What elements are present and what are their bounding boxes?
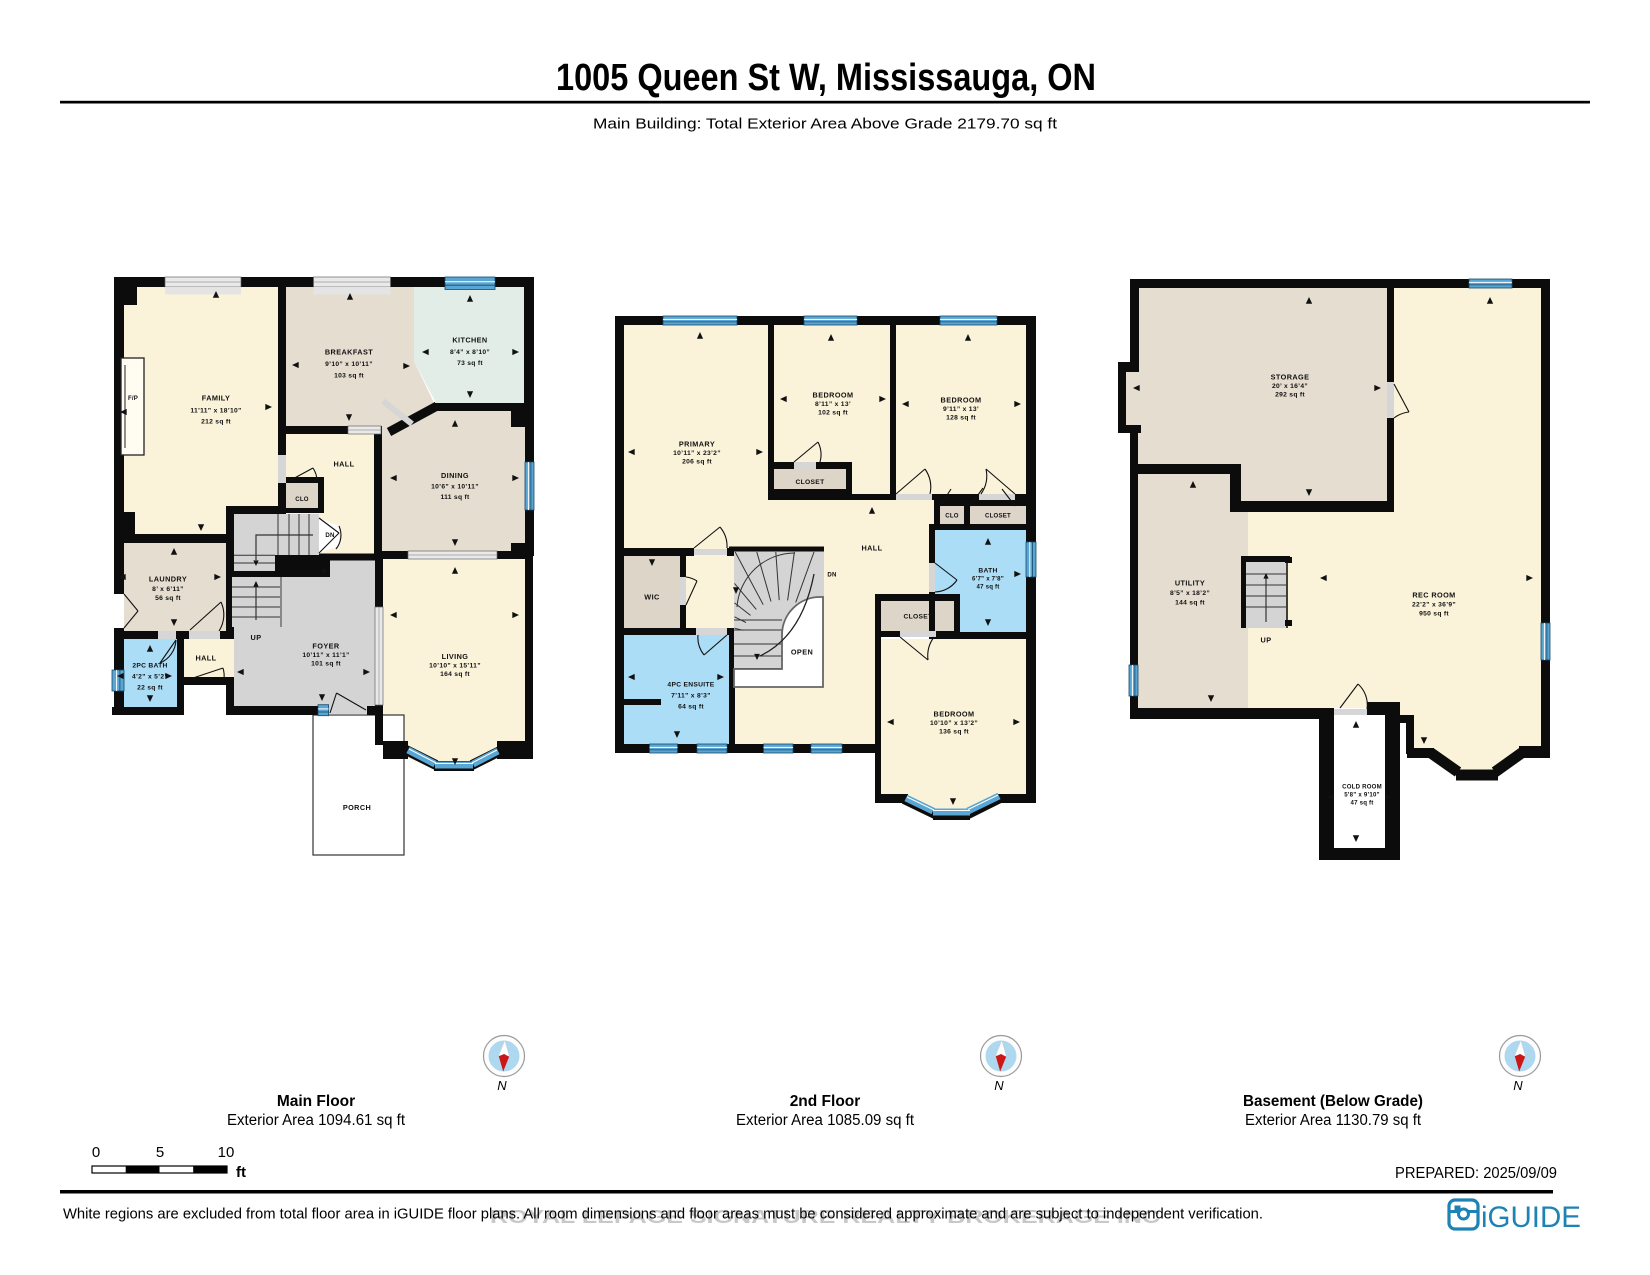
svg-text:1005 Queen St W, Mississauga,: 1005 Queen St W, Mississauga, ON	[556, 57, 1096, 99]
svg-text:10’11” x 23’2”: 10’11” x 23’2”	[673, 450, 721, 457]
svg-text:Main Building: Total Exterior: Main Building: Total Exterior Area Above…	[593, 116, 1058, 133]
svg-text:LIVING: LIVING	[442, 652, 469, 661]
svg-text:5: 5	[156, 1144, 164, 1161]
svg-text:F/P: F/P	[128, 395, 138, 402]
svg-text:6’7” x 7’8”: 6’7” x 7’8”	[972, 576, 1004, 583]
svg-text:144 sq ft: 144 sq ft	[1175, 600, 1205, 607]
svg-text:206 sq ft: 206 sq ft	[682, 459, 712, 466]
svg-text:103 sq ft: 103 sq ft	[334, 373, 364, 380]
svg-text:BREAKFAST: BREAKFAST	[325, 348, 373, 357]
svg-text:47 sq ft: 47 sq ft	[977, 584, 1000, 591]
svg-text:Exterior Area 1085.09 sq ft: Exterior Area 1085.09 sq ft	[736, 1112, 915, 1129]
svg-text:7’11” x 8’3”: 7’11” x 8’3”	[671, 693, 711, 700]
svg-text:9’10” x 10’11”: 9’10” x 10’11”	[325, 361, 373, 368]
svg-text:PREPARED: 2025/09/09: PREPARED: 2025/09/09	[1395, 1165, 1557, 1182]
svg-text:FAMILY: FAMILY	[202, 394, 230, 403]
svg-text:2PC BATH: 2PC BATH	[132, 663, 167, 670]
svg-text:20’ x 16’4”: 20’ x 16’4”	[1272, 383, 1308, 390]
svg-text:HALL: HALL	[333, 460, 354, 469]
svg-text:OPEN: OPEN	[791, 648, 813, 657]
svg-text:4PC ENSUITE: 4PC ENSUITE	[667, 682, 714, 689]
svg-text:111 sq ft: 111 sq ft	[440, 494, 470, 501]
svg-text:8’5” x 18’2”: 8’5” x 18’2”	[1170, 590, 1210, 597]
svg-text:8’ x 6’11”: 8’ x 6’11”	[152, 586, 184, 593]
svg-text:CLO: CLO	[295, 496, 309, 503]
svg-text:COLD ROOM: COLD ROOM	[1342, 784, 1382, 791]
svg-text:4’2” x 5’2”: 4’2” x 5’2”	[132, 674, 168, 681]
svg-text:136 sq ft: 136 sq ft	[939, 729, 969, 736]
svg-text:64 sq ft: 64 sq ft	[678, 704, 704, 711]
svg-text:BEDROOM: BEDROOM	[813, 391, 854, 400]
svg-text:UP: UP	[1261, 636, 1272, 645]
svg-text:N: N	[1513, 1078, 1523, 1093]
svg-text:101 sq ft: 101 sq ft	[311, 661, 341, 668]
svg-text:Exterior Area 1130.79 sq ft: Exterior Area 1130.79 sq ft	[1245, 1112, 1422, 1129]
svg-text:WIC: WIC	[644, 593, 660, 602]
svg-text:47 sq ft: 47 sq ft	[1351, 800, 1374, 807]
svg-text:950 sq ft: 950 sq ft	[1419, 611, 1449, 618]
svg-text:FOYER: FOYER	[312, 642, 339, 651]
svg-text:Basement (Below Grade): Basement (Below Grade)	[1243, 1093, 1423, 1110]
svg-text:HALL: HALL	[195, 654, 216, 663]
svg-text:iGUIDE: iGUIDE	[1481, 1201, 1581, 1234]
svg-text:5’8” x 9’10”: 5’8” x 9’10”	[1344, 792, 1380, 799]
svg-text:BEDROOM: BEDROOM	[934, 710, 975, 719]
svg-text:10’10” x 13’2”: 10’10” x 13’2”	[930, 720, 978, 727]
svg-text:10’10” x 15’11”: 10’10” x 15’11”	[429, 663, 481, 670]
svg-text:CLOSET: CLOSET	[796, 479, 826, 486]
svg-text:22 sq ft: 22 sq ft	[137, 685, 163, 692]
svg-text:73 sq ft: 73 sq ft	[457, 360, 483, 367]
svg-text:10’6” x 10’11”: 10’6” x 10’11”	[431, 484, 479, 491]
svg-text:White regions are excluded fro: White regions are excluded from total fl…	[63, 1206, 1263, 1223]
svg-text:8’4” x 8’10”: 8’4” x 8’10”	[450, 349, 490, 356]
svg-text:164 sq ft: 164 sq ft	[440, 671, 470, 678]
svg-text:N: N	[994, 1078, 1004, 1093]
svg-text:56 sq ft: 56 sq ft	[155, 595, 181, 602]
svg-text:BEDROOM: BEDROOM	[941, 396, 982, 405]
svg-text:212 sq ft: 212 sq ft	[201, 419, 231, 426]
svg-text:292 sq ft: 292 sq ft	[1275, 392, 1305, 399]
svg-text:LAUNDRY: LAUNDRY	[149, 575, 187, 584]
svg-text:22’2” x 36’9”: 22’2” x 36’9”	[1412, 602, 1456, 609]
svg-text:Main Floor: Main Floor	[277, 1093, 355, 1110]
svg-text:11’11” x 18’10”: 11’11” x 18’10”	[190, 408, 241, 415]
svg-text:DINING: DINING	[441, 471, 469, 480]
svg-text:Exterior Area 1094.61 sq ft: Exterior Area 1094.61 sq ft	[227, 1112, 406, 1129]
svg-text:102 sq ft: 102 sq ft	[818, 410, 848, 417]
svg-text:UTILITY: UTILITY	[1175, 579, 1205, 588]
svg-text:N: N	[497, 1078, 507, 1093]
svg-text:10: 10	[218, 1144, 235, 1161]
svg-text:REC ROOM: REC ROOM	[1412, 591, 1455, 600]
svg-text:2nd Floor: 2nd Floor	[790, 1093, 861, 1110]
svg-text:UP: UP	[251, 633, 262, 642]
svg-text:PORCH: PORCH	[343, 803, 371, 812]
svg-text:8’11” x 13’: 8’11” x 13’	[815, 401, 851, 408]
svg-text:9’11” x 13’: 9’11” x 13’	[943, 406, 979, 413]
svg-text:PRIMARY: PRIMARY	[679, 440, 715, 449]
svg-text:STORAGE: STORAGE	[1271, 373, 1310, 382]
svg-text:128 sq ft: 128 sq ft	[946, 415, 976, 422]
svg-text:CLOSET: CLOSET	[904, 614, 934, 621]
svg-text:0: 0	[92, 1144, 100, 1161]
svg-text:KITCHEN: KITCHEN	[452, 336, 487, 345]
svg-text:DN: DN	[325, 532, 334, 539]
svg-text:10’11” x 11’1”: 10’11” x 11’1”	[302, 652, 349, 659]
svg-text:BATH: BATH	[978, 568, 997, 575]
svg-text:CLOSET: CLOSET	[985, 513, 1011, 520]
svg-text:ft: ft	[236, 1164, 246, 1181]
svg-text:HALL: HALL	[861, 544, 882, 553]
svg-text:CLO: CLO	[945, 513, 959, 520]
svg-text:DN: DN	[827, 572, 836, 579]
